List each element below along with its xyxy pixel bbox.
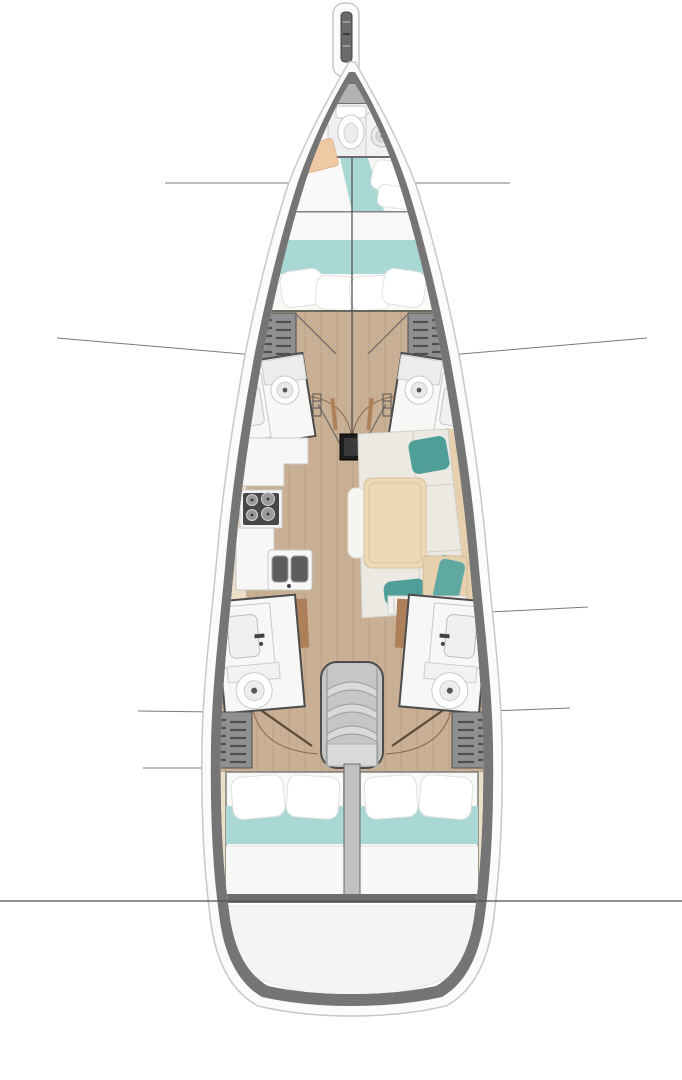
companionway-stairs [321,662,383,768]
cabin-aft-port [226,772,344,902]
berth-duvet [226,846,344,900]
mast-base-inner [344,438,360,456]
faucet [287,584,291,588]
yacht-floorplan-svg [0,0,682,1080]
teal-pillow [407,435,450,475]
interior [198,70,506,999]
pillow [381,267,428,308]
sink-basin [291,556,308,582]
pillow [230,774,285,820]
toilet-icon [336,106,366,149]
burner-center [251,514,254,517]
leader-line [449,338,647,355]
leader-line [490,708,570,711]
burner-center [267,498,270,501]
salon-table [364,478,426,568]
sink-basin [272,556,288,582]
floorplan-canvas [0,0,682,1080]
aft-cabins [212,764,492,902]
burner-center [251,499,254,502]
salon-bench [348,488,366,558]
transom-bulkhead [216,894,488,903]
anchor-roller-slot [341,12,352,62]
pillow [286,774,341,820]
leader-line [57,338,255,355]
cabin-aft-stbd [360,772,478,902]
cabin-divider [344,764,360,902]
burner-center [267,513,270,516]
stair-landing [326,744,378,766]
